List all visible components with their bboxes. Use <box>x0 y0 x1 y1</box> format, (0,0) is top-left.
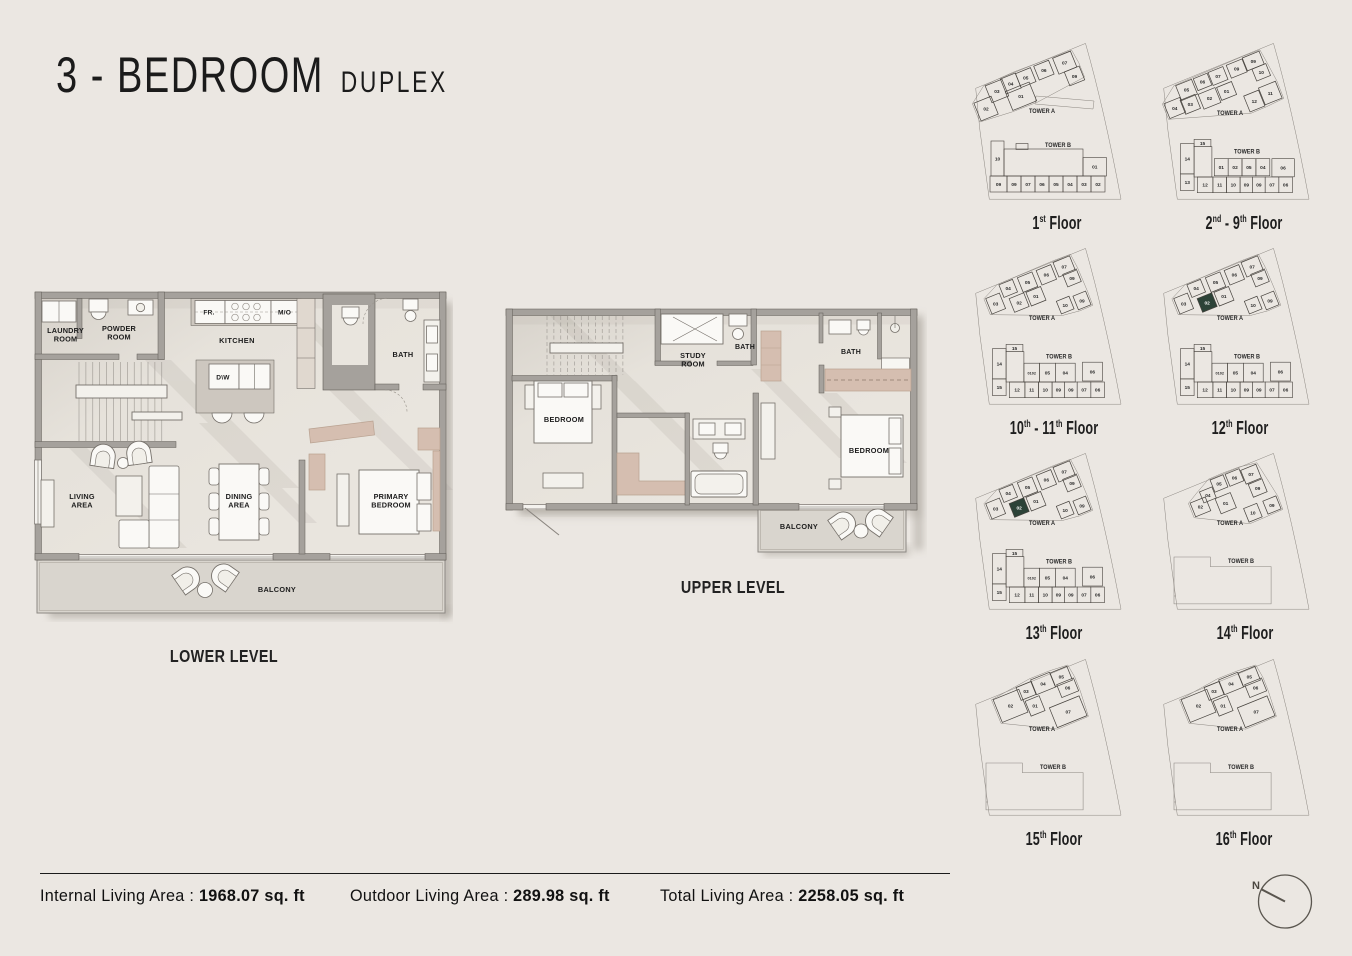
svg-text:TOWER B: TOWER B <box>1228 765 1255 771</box>
svg-text:15: 15 <box>1200 141 1206 147</box>
svg-text:04: 04 <box>1006 491 1012 497</box>
svg-text:05: 05 <box>1246 165 1252 171</box>
svg-text:07: 07 <box>1254 710 1260 716</box>
svg-text:02: 02 <box>1198 505 1204 511</box>
svg-text:01: 01 <box>1224 89 1230 95</box>
svg-text:04: 04 <box>1172 106 1178 112</box>
svg-text:11: 11 <box>1268 91 1273 97</box>
svg-text:05: 05 <box>1216 481 1222 487</box>
svg-text:06: 06 <box>1095 593 1101 599</box>
svg-text:06: 06 <box>1280 166 1286 172</box>
svg-text:TOWER A: TOWER A <box>1029 316 1056 322</box>
svg-text:12: 12 <box>1014 593 1020 599</box>
svg-text:05: 05 <box>1184 88 1190 94</box>
svg-text:06: 06 <box>1041 68 1047 74</box>
svg-text:09: 09 <box>996 182 1002 188</box>
svg-text:04: 04 <box>1067 182 1073 188</box>
svg-text:12: 12 <box>1014 388 1020 394</box>
svg-text:05: 05 <box>1213 280 1219 286</box>
svg-text:01: 01 <box>1033 294 1039 300</box>
svg-text:04: 04 <box>1228 681 1234 687</box>
svg-text:02: 02 <box>983 106 989 112</box>
svg-text:TOWER B: TOWER B <box>1228 559 1255 565</box>
svg-text:09: 09 <box>1269 503 1275 509</box>
svg-text:TOWER A: TOWER A <box>1217 316 1244 322</box>
svg-text:02: 02 <box>1016 300 1022 306</box>
svg-text:02: 02 <box>1204 300 1210 306</box>
svg-text:09: 09 <box>1257 276 1263 282</box>
svg-text:ROOM: ROOM <box>54 335 78 344</box>
svg-text:05: 05 <box>1025 485 1031 491</box>
svg-text:12: 12 <box>1202 183 1208 189</box>
svg-text:04: 04 <box>1260 165 1266 171</box>
svg-text:BATH: BATH <box>735 344 755 351</box>
svg-text:03: 03 <box>1211 689 1217 695</box>
svg-text:TOWER B: TOWER B <box>1234 150 1261 156</box>
svg-text:07: 07 <box>1062 469 1068 475</box>
svg-text:TOWER A: TOWER A <box>1029 109 1056 115</box>
svg-text:01: 01 <box>1092 165 1098 171</box>
svg-text:01: 01 <box>1032 704 1038 710</box>
svg-text:09: 09 <box>1079 298 1085 304</box>
svg-text:02: 02 <box>1095 182 1101 188</box>
svg-text:01: 01 <box>1018 94 1024 100</box>
svg-text:FR.: FR. <box>203 310 214 317</box>
svg-text:0102: 0102 <box>1216 371 1224 375</box>
svg-text:14: 14 <box>1185 157 1191 163</box>
svg-text:05: 05 <box>1059 674 1065 680</box>
svg-text:03: 03 <box>994 89 1000 95</box>
svg-text:AREA: AREA <box>228 501 250 510</box>
svg-text:14: 14 <box>997 567 1003 573</box>
svg-text:06: 06 <box>1065 686 1071 692</box>
svg-text:09: 09 <box>1244 388 1250 394</box>
svg-text:12: 12 <box>1202 388 1208 394</box>
svg-text:14: 14 <box>1185 362 1191 368</box>
svg-text:01: 01 <box>1221 294 1227 300</box>
svg-text:BALCONY: BALCONY <box>258 585 296 594</box>
svg-text:09: 09 <box>1234 66 1240 72</box>
svg-text:04: 04 <box>1008 81 1014 87</box>
svg-text:09: 09 <box>1068 388 1074 394</box>
svg-text:BATH: BATH <box>393 350 414 359</box>
svg-text:M/O: M/O <box>278 310 291 317</box>
svg-text:09: 09 <box>1068 593 1074 599</box>
svg-text:12: 12 <box>1252 99 1258 105</box>
svg-text:N: N <box>1252 880 1260 892</box>
svg-text:04: 04 <box>1063 575 1069 581</box>
svg-text:05: 05 <box>1045 370 1051 376</box>
svg-text:04: 04 <box>1251 370 1257 376</box>
svg-text:05: 05 <box>1233 370 1239 376</box>
svg-text:TOWER A: TOWER A <box>1217 111 1244 117</box>
svg-text:02: 02 <box>1196 704 1202 710</box>
svg-text:07: 07 <box>1250 264 1256 270</box>
svg-text:06: 06 <box>1090 369 1096 375</box>
svg-text:BEDROOM: BEDROOM <box>849 446 889 455</box>
svg-text:KITCHEN: KITCHEN <box>219 336 255 345</box>
svg-text:03: 03 <box>993 301 999 307</box>
svg-text:09: 09 <box>1069 276 1075 282</box>
svg-text:10: 10 <box>1251 303 1257 309</box>
svg-text:TOWER A: TOWER A <box>1029 727 1056 733</box>
svg-text:09: 09 <box>1011 182 1017 188</box>
svg-text:09: 09 <box>1069 481 1075 487</box>
svg-text:04: 04 <box>1063 370 1069 376</box>
svg-text:BATH: BATH <box>841 349 861 356</box>
svg-text:11: 11 <box>1029 388 1034 394</box>
svg-text:04: 04 <box>1205 493 1211 499</box>
svg-text:09: 09 <box>1255 486 1261 492</box>
svg-text:09: 09 <box>1056 388 1062 394</box>
svg-text:06: 06 <box>1039 182 1045 188</box>
svg-text:15: 15 <box>997 590 1003 596</box>
svg-text:06: 06 <box>1200 80 1206 86</box>
svg-text:03: 03 <box>1188 102 1194 108</box>
svg-text:07: 07 <box>1248 472 1254 478</box>
svg-text:02: 02 <box>1016 505 1022 511</box>
svg-text:07: 07 <box>1025 182 1031 188</box>
svg-text:09: 09 <box>1056 593 1062 599</box>
svg-text:10: 10 <box>995 156 1001 162</box>
svg-text:03: 03 <box>1023 689 1029 695</box>
svg-text:01: 01 <box>1223 501 1229 507</box>
svg-text:TOWER A: TOWER A <box>1217 521 1244 527</box>
svg-text:13: 13 <box>1185 180 1191 186</box>
svg-text:14: 14 <box>997 362 1003 368</box>
svg-text:04: 04 <box>1040 681 1046 687</box>
svg-text:11: 11 <box>1217 388 1222 394</box>
svg-text:07: 07 <box>1269 183 1275 189</box>
svg-text:10: 10 <box>1231 183 1237 189</box>
svg-text:TOWER B: TOWER B <box>1046 560 1073 566</box>
svg-text:15: 15 <box>1012 551 1018 557</box>
svg-text:15: 15 <box>1185 385 1191 391</box>
svg-text:ROOM: ROOM <box>681 360 705 369</box>
svg-text:AREA: AREA <box>71 501 93 510</box>
svg-text:09: 09 <box>1072 74 1078 80</box>
svg-text:BEDROOM: BEDROOM <box>544 415 584 424</box>
svg-text:09: 09 <box>1256 388 1262 394</box>
svg-text:07: 07 <box>1062 264 1068 270</box>
svg-text:10: 10 <box>1259 70 1265 76</box>
svg-text:01: 01 <box>1220 704 1226 710</box>
svg-text:04: 04 <box>1194 286 1200 292</box>
svg-text:02: 02 <box>1232 165 1238 171</box>
svg-text:05: 05 <box>1053 182 1059 188</box>
svg-text:06: 06 <box>1283 388 1289 394</box>
svg-text:BEDROOM: BEDROOM <box>371 501 411 510</box>
svg-text:06: 06 <box>1278 369 1284 375</box>
svg-text:07: 07 <box>1081 593 1087 599</box>
svg-text:05: 05 <box>1247 674 1253 680</box>
svg-text:09: 09 <box>1244 183 1250 189</box>
svg-text:09: 09 <box>1079 503 1085 509</box>
svg-text:07: 07 <box>1215 74 1221 80</box>
svg-text:06: 06 <box>1090 574 1096 580</box>
svg-text:09: 09 <box>1251 59 1257 65</box>
svg-text:TOWER A: TOWER A <box>1217 727 1244 733</box>
svg-text:07: 07 <box>1081 388 1087 394</box>
svg-text:06: 06 <box>1253 686 1259 692</box>
svg-text:07: 07 <box>1269 388 1275 394</box>
svg-text:TOWER B: TOWER B <box>1045 143 1072 149</box>
svg-text:TOWER B: TOWER B <box>1040 765 1067 771</box>
svg-text:09: 09 <box>1267 298 1273 304</box>
svg-text:09: 09 <box>1256 183 1262 189</box>
svg-text:02: 02 <box>1008 704 1014 710</box>
svg-text:03: 03 <box>1081 182 1087 188</box>
svg-text:05: 05 <box>1045 575 1051 581</box>
svg-text:15: 15 <box>1012 346 1018 352</box>
svg-text:06: 06 <box>1095 388 1101 394</box>
svg-text:07: 07 <box>1062 60 1068 66</box>
svg-text:06: 06 <box>1283 183 1289 189</box>
svg-text:01: 01 <box>1219 165 1225 171</box>
svg-text:07: 07 <box>1066 710 1072 716</box>
svg-text:10: 10 <box>1043 593 1049 599</box>
svg-text:15: 15 <box>997 385 1003 391</box>
svg-text:06: 06 <box>1232 273 1238 279</box>
svg-text:ROOM: ROOM <box>107 333 131 342</box>
svg-text:03: 03 <box>993 506 999 512</box>
svg-text:11: 11 <box>1029 593 1034 599</box>
svg-text:03: 03 <box>1181 301 1187 307</box>
svg-text:01: 01 <box>1033 499 1039 505</box>
svg-text:06: 06 <box>1232 475 1238 481</box>
svg-text:10: 10 <box>1231 388 1237 394</box>
svg-text:0102: 0102 <box>1028 371 1036 375</box>
svg-text:10: 10 <box>1063 303 1069 309</box>
svg-text:0102: 0102 <box>1028 576 1036 580</box>
svg-text:D\W: D\W <box>216 375 230 382</box>
svg-text:10: 10 <box>1250 511 1256 517</box>
svg-text:05: 05 <box>1023 75 1029 81</box>
svg-text:BALCONY: BALCONY <box>780 522 818 531</box>
svg-text:06: 06 <box>1044 273 1050 279</box>
svg-text:05: 05 <box>1025 280 1031 286</box>
svg-text:15: 15 <box>1200 346 1206 352</box>
svg-text:11: 11 <box>1217 183 1222 189</box>
svg-text:TOWER B: TOWER B <box>1234 355 1261 361</box>
svg-text:TOWER A: TOWER A <box>1029 521 1056 527</box>
svg-text:10: 10 <box>1063 508 1069 514</box>
svg-text:10: 10 <box>1043 388 1049 394</box>
svg-text:02: 02 <box>1207 96 1213 102</box>
svg-text:TOWER B: TOWER B <box>1046 355 1073 361</box>
svg-text:06: 06 <box>1044 478 1050 484</box>
svg-text:04: 04 <box>1006 286 1012 292</box>
